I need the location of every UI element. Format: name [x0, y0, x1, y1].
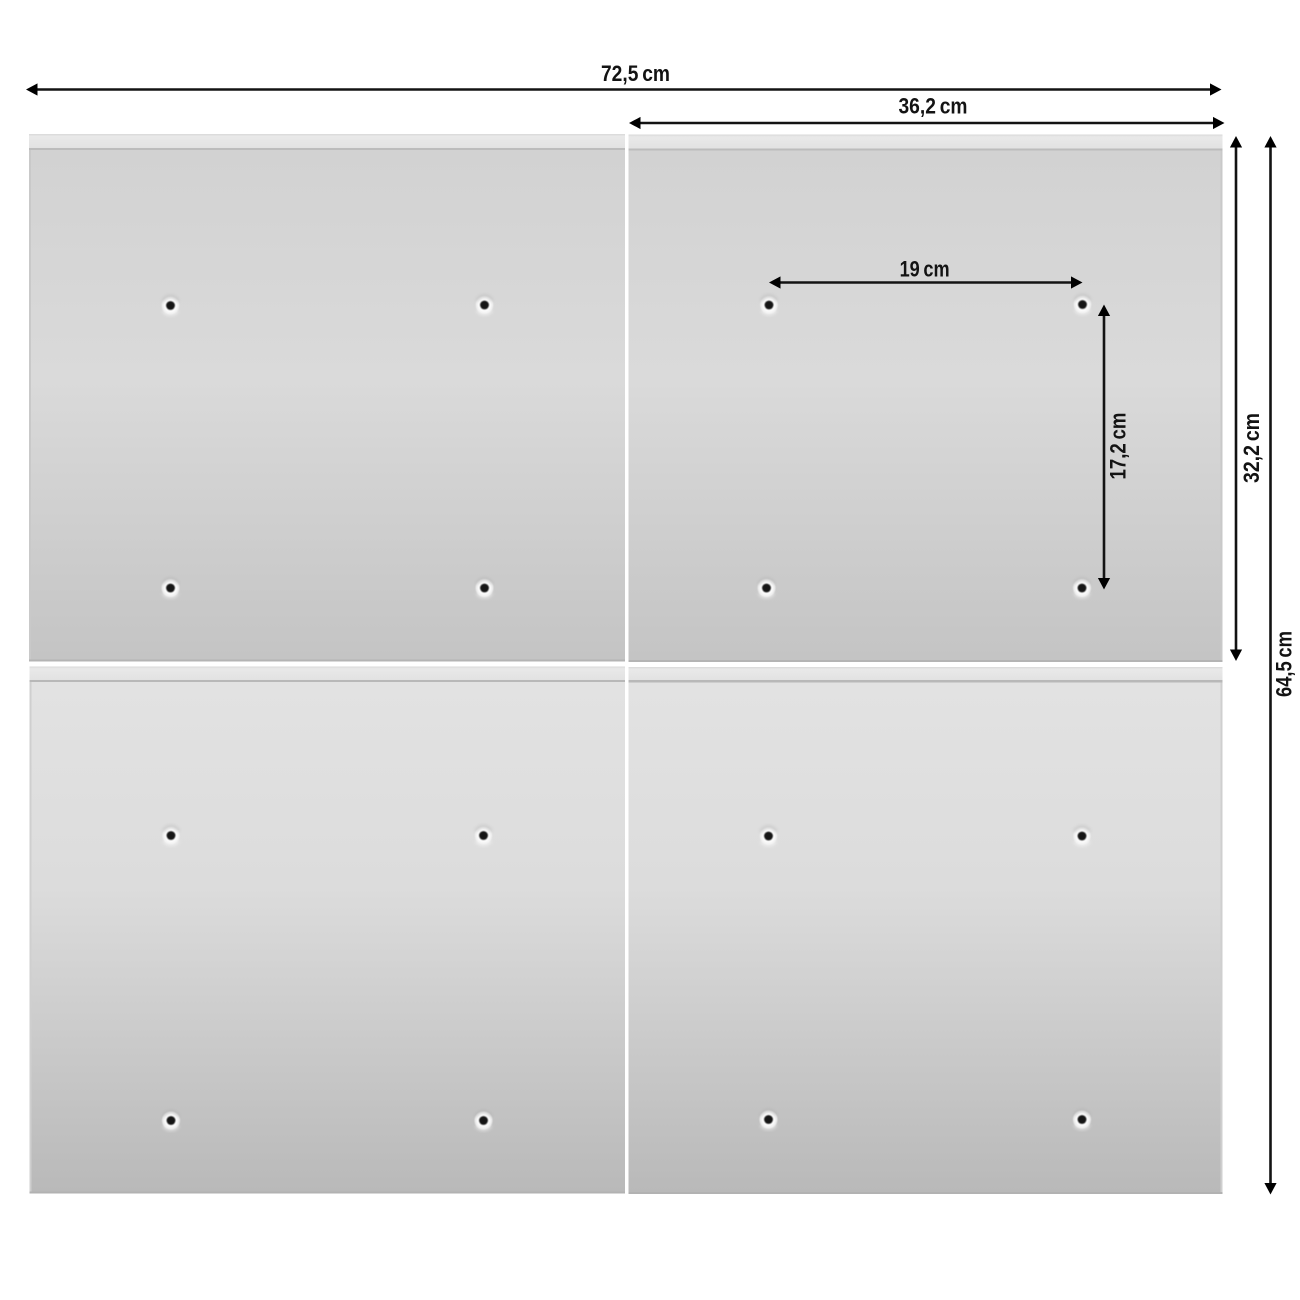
svg-text:19 cm: 19 cm [900, 257, 950, 282]
svg-text:17,2 cm: 17,2 cm [1106, 413, 1131, 480]
svg-text:36,2 cm: 36,2 cm [899, 93, 968, 118]
svg-text:32,2 cm: 32,2 cm [1239, 413, 1264, 483]
svg-text:64,5 cm: 64,5 cm [1272, 631, 1297, 697]
svg-text:72,5 cm: 72,5 cm [601, 61, 670, 86]
